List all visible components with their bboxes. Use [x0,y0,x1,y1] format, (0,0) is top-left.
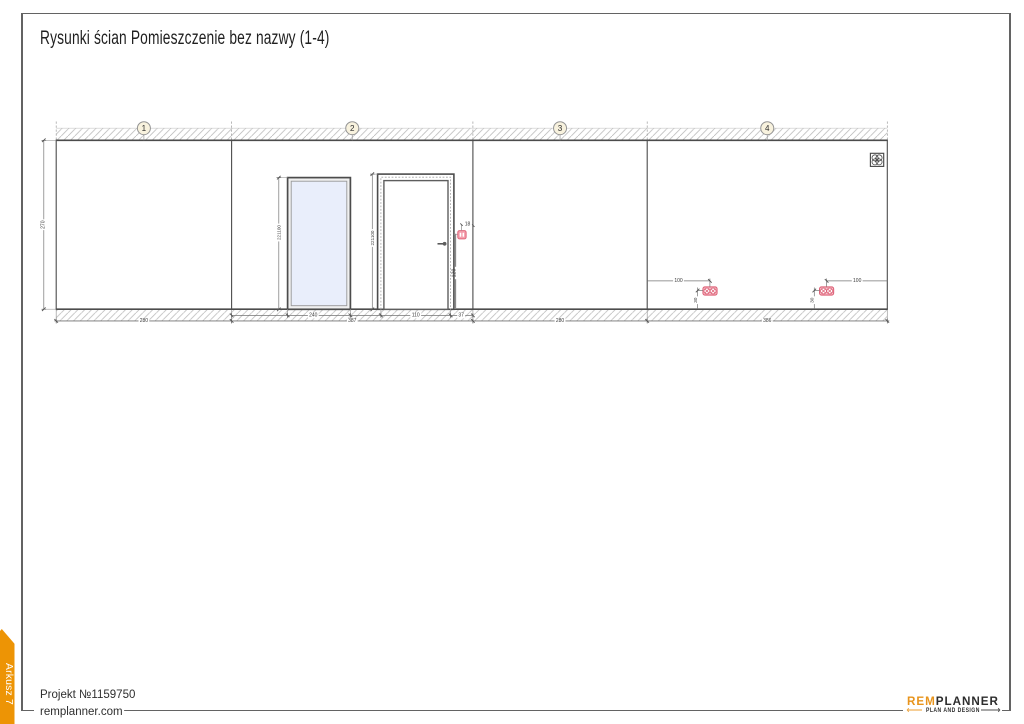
svg-text:18: 18 [465,222,471,228]
svg-text:280: 280 [140,318,149,324]
svg-text:2: 2 [350,124,355,133]
svg-text:100: 100 [853,278,862,284]
svg-text:221100: 221100 [276,225,281,240]
svg-text:120: 120 [452,269,458,278]
svg-text:4: 4 [765,124,770,133]
svg-text:30: 30 [810,297,816,303]
svg-text:110: 110 [412,312,420,318]
svg-text:270: 270 [40,220,46,229]
svg-text:387: 387 [348,318,357,324]
svg-text:1: 1 [142,124,147,133]
svg-text:30: 30 [693,297,699,303]
svg-text:386: 386 [763,318,772,324]
svg-text:221100: 221100 [370,230,375,245]
svg-text:3: 3 [558,124,563,133]
svg-text:280: 280 [556,318,565,324]
svg-text:37: 37 [458,312,464,318]
svg-text:100: 100 [674,278,683,284]
svg-text:240: 240 [309,312,318,318]
